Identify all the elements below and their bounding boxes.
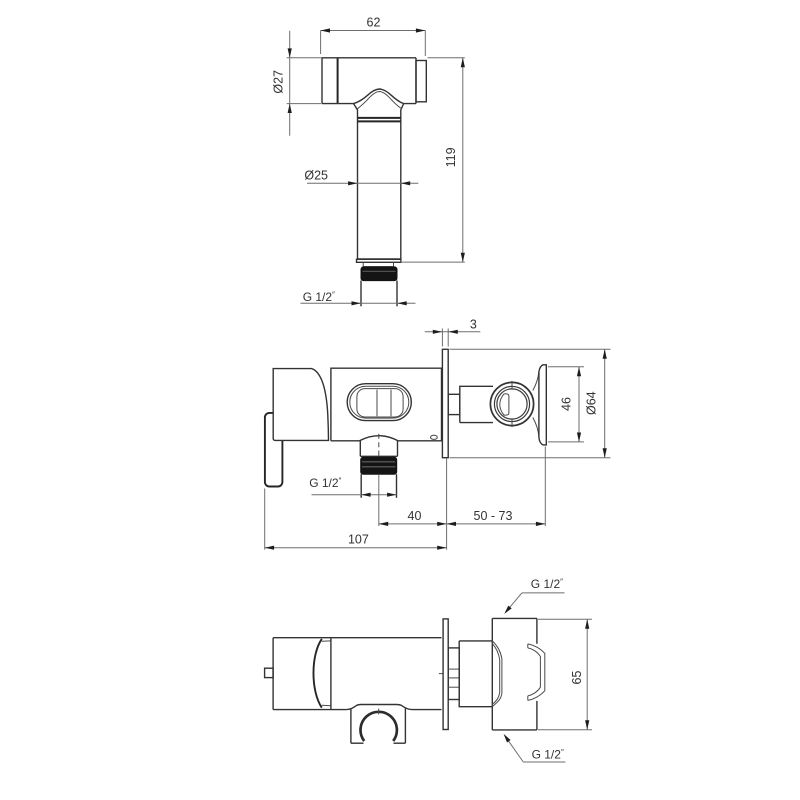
svg-text:3: 3 xyxy=(470,317,477,331)
svg-text:107: 107 xyxy=(348,532,369,546)
svg-text:G 1/2″: G 1/2″ xyxy=(532,748,564,762)
svg-text:62: 62 xyxy=(367,16,381,30)
svg-text:Ø64: Ø64 xyxy=(585,391,599,415)
svg-text:46: 46 xyxy=(559,397,573,411)
svg-text:G 1/2″: G 1/2″ xyxy=(531,577,563,591)
svg-text:65: 65 xyxy=(570,671,584,685)
svg-text:119: 119 xyxy=(444,147,458,167)
svg-text:40: 40 xyxy=(408,509,422,523)
svg-text:Ø25: Ø25 xyxy=(304,168,328,182)
svg-text:50 - 73: 50 - 73 xyxy=(474,509,513,523)
svg-text:G 1/2″: G 1/2″ xyxy=(309,476,341,490)
svg-text:G 1/2″: G 1/2″ xyxy=(303,290,335,304)
svg-text:Ø27: Ø27 xyxy=(271,70,285,94)
